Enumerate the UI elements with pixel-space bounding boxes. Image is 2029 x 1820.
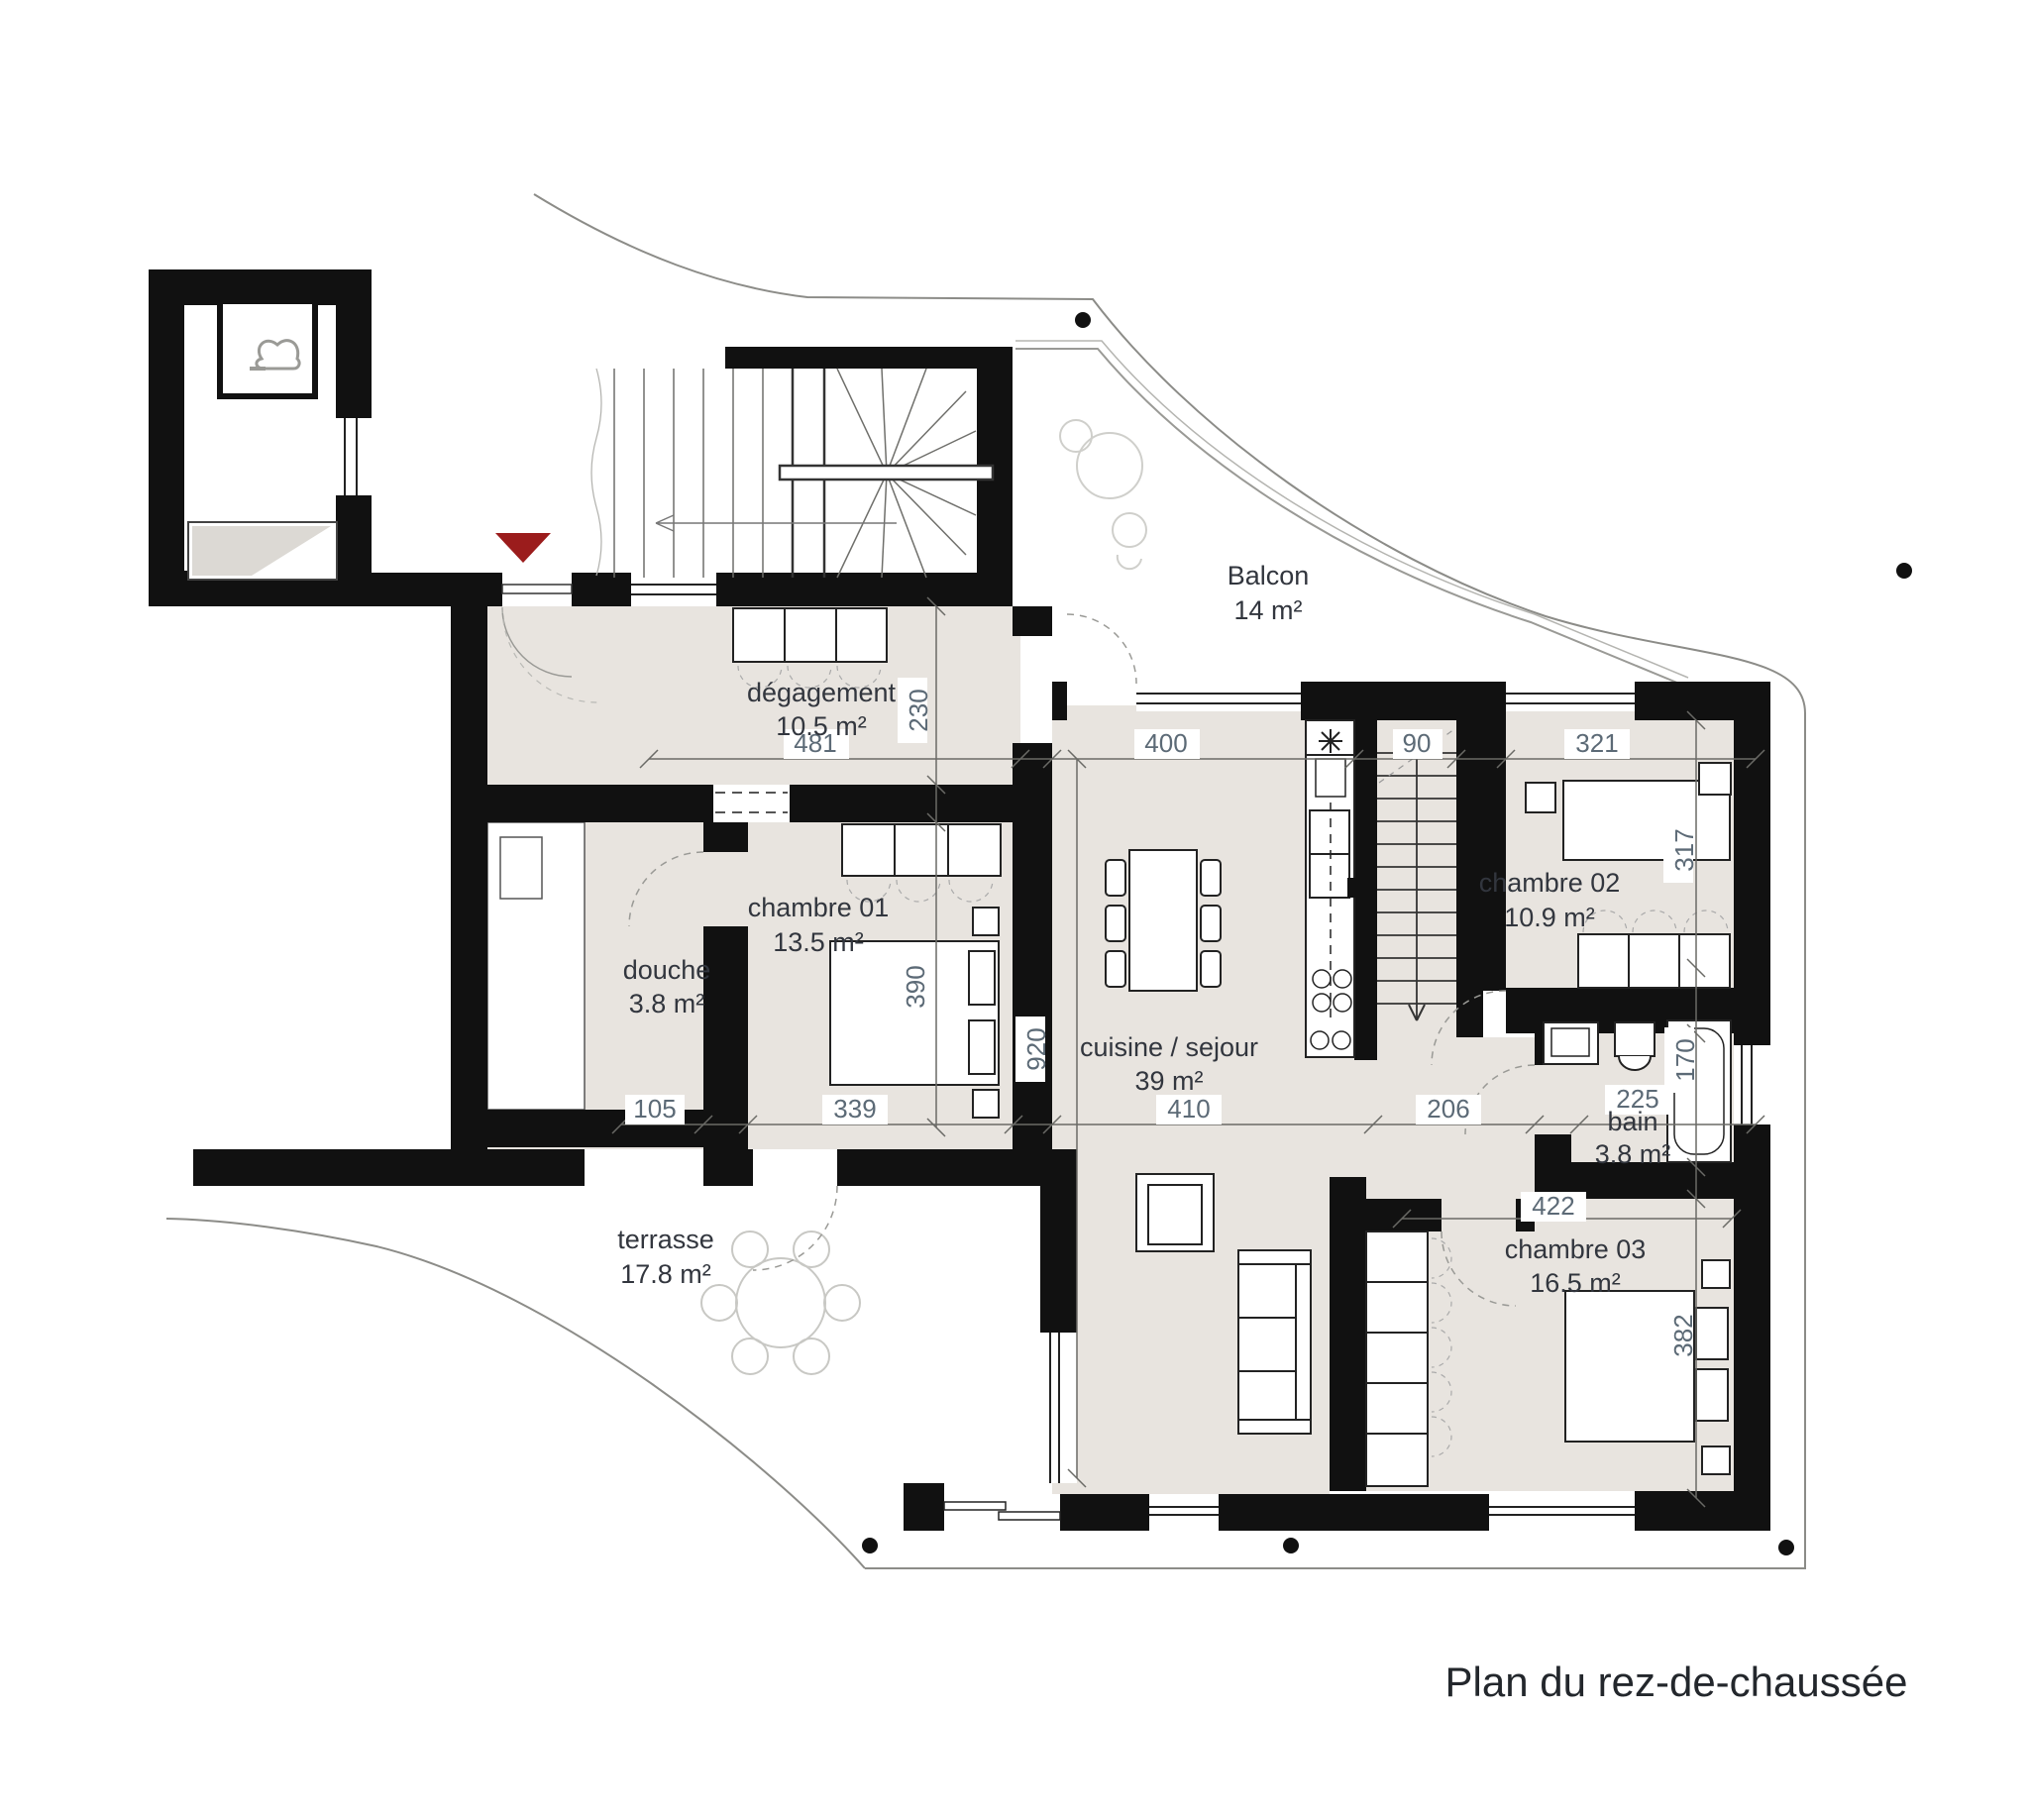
survey-dot <box>862 1538 878 1553</box>
balcony-door-arc <box>1067 614 1136 684</box>
sliding-door-terrace <box>944 1502 1060 1520</box>
dim-label: 230 <box>904 689 933 731</box>
room-label-balcon: Balcon <box>1228 561 1310 590</box>
window-chambre02-top <box>1506 688 1635 711</box>
dim-label: 105 <box>633 1094 676 1124</box>
kitchen <box>1306 720 1361 1057</box>
room-area-cuisine: 39 m² <box>1134 1066 1203 1096</box>
window-sejour-south <box>1149 1499 1219 1523</box>
dim-label: 920 <box>1021 1027 1051 1070</box>
bain-wc <box>1615 1022 1655 1070</box>
room-label-bain: bain <box>1607 1107 1657 1136</box>
dim-label: 390 <box>901 965 930 1008</box>
floor-plan-page: 481 400 90 321 230 390 920 317 170 382 1… <box>0 0 2029 1820</box>
room-area-chambre03: 16.5 m² <box>1530 1268 1621 1298</box>
room-area-chambre01: 13.5 m² <box>773 927 864 957</box>
floor-plan-canvas: 481 400 90 321 230 390 920 317 170 382 1… <box>0 0 2029 1820</box>
dim-label: 90 <box>1403 728 1432 758</box>
elevator-cab <box>220 301 315 396</box>
room-area-chambre02: 10.9 m² <box>1504 903 1595 932</box>
elevator <box>188 301 337 580</box>
survey-dot <box>1075 312 1091 328</box>
niche-chambre02 <box>1699 763 1731 795</box>
entrance-marker-icon <box>495 533 551 563</box>
dim-label: 382 <box>1668 1314 1698 1356</box>
window-sejour-west <box>1040 1333 1077 1483</box>
dim-label: 321 <box>1575 728 1618 758</box>
sofa <box>1238 1250 1311 1434</box>
room-label-cuisine: cuisine / sejour <box>1080 1032 1258 1062</box>
plan-title: Plan du rez-de-chaussée <box>1445 1659 1908 1705</box>
window-bain-right <box>1734 1045 1770 1124</box>
dim-label: 206 <box>1427 1094 1469 1124</box>
room-label-chambre03: chambre 03 <box>1505 1234 1647 1264</box>
balcony-plants <box>1060 420 1146 569</box>
survey-dot <box>1778 1540 1794 1555</box>
terrace-table <box>736 1258 825 1347</box>
sliding-door-chambre01 <box>715 793 788 812</box>
room-label-douche: douche <box>623 955 711 985</box>
window-cuisine-top <box>1136 688 1301 711</box>
dim-label: 317 <box>1669 828 1699 871</box>
room-area-degagement: 10.5 m² <box>776 711 867 741</box>
room-area-balcon: 14 m² <box>1233 595 1302 625</box>
room-label-chambre01: chambre 01 <box>748 893 890 922</box>
room-label-chambre02: chambre 02 <box>1479 868 1621 898</box>
room-area-bain: 3.8 m² <box>1595 1139 1671 1169</box>
bain-vanity <box>1544 1022 1598 1064</box>
storage-under-stairs <box>188 522 337 580</box>
faucet-icon <box>1319 729 1342 753</box>
glazed-entry-sidelight <box>631 577 716 602</box>
armchair <box>1136 1174 1214 1251</box>
dim-label: 400 <box>1144 728 1187 758</box>
room-label-terrasse: terrasse <box>617 1225 714 1254</box>
dim-label: 170 <box>1670 1038 1700 1081</box>
dim-label: 410 <box>1167 1094 1210 1124</box>
terrace-table-set <box>701 1231 860 1374</box>
dim-label: 339 <box>833 1094 876 1124</box>
survey-dot <box>1283 1538 1299 1553</box>
survey-dot <box>1896 563 1912 579</box>
window-chambre03-south <box>1489 1499 1635 1523</box>
room-area-douche: 3.8 m² <box>629 989 705 1018</box>
elevator-shaft-door <box>336 418 372 495</box>
duct-box <box>500 837 542 899</box>
dim-label: 422 <box>1532 1191 1574 1221</box>
dining-table <box>1106 850 1221 991</box>
room-label-degagement: dégagement <box>747 678 897 707</box>
room-area-terrasse: 17.8 m² <box>620 1259 711 1289</box>
main-staircase <box>591 369 993 578</box>
